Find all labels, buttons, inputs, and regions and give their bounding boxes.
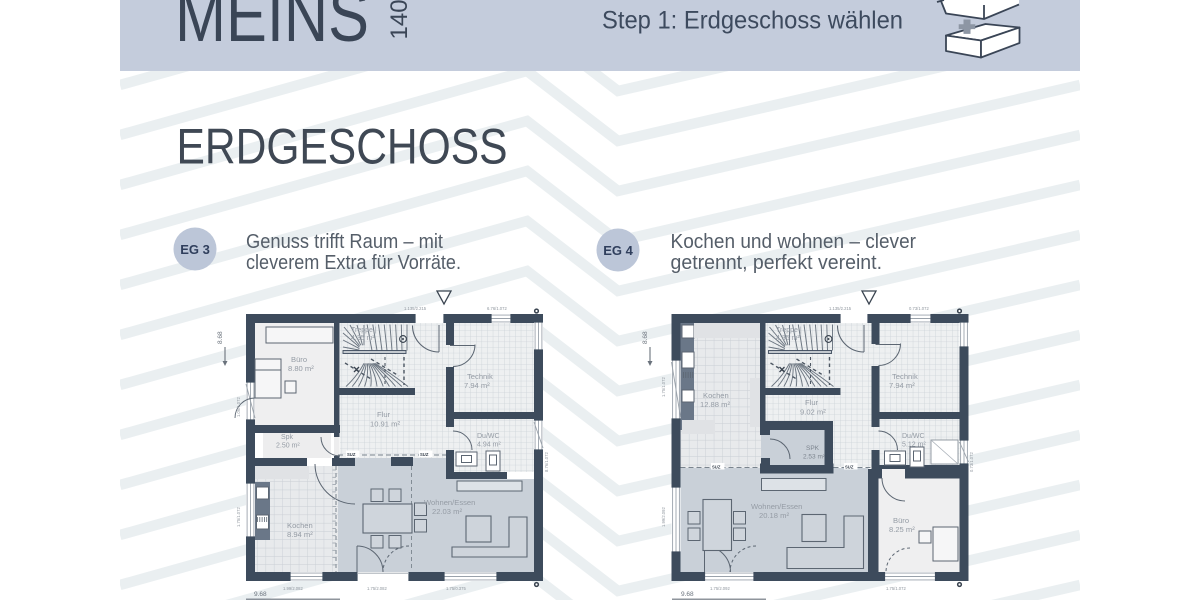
svg-text:SUZ: SUZ — [845, 465, 854, 470]
svg-text:0.73/1.072: 0.73/1.072 — [969, 452, 974, 472]
svg-text:Technik: Technik — [467, 372, 493, 381]
svg-text:2.53 m²: 2.53 m² — [803, 454, 826, 461]
svg-text:10.91 m²: 10.91 m² — [370, 420, 400, 429]
svg-text:Büro: Büro — [291, 355, 307, 364]
svg-text:1.135/2.215: 1.135/2.215 — [829, 306, 852, 311]
svg-text:2.50 m²: 2.50 m² — [276, 443, 300, 450]
svg-text:Genuss trifft Raum – mit: Genuss trifft Raum – mit — [246, 231, 443, 253]
svg-text:cleverem Extra für Vorräte.: cleverem Extra für Vorräte. — [246, 252, 461, 274]
svg-text:9.68: 9.68 — [254, 591, 267, 598]
svg-text:7.94 m²: 7.94 m² — [464, 381, 490, 390]
svg-text:7.94 m²: 7.94 m² — [889, 381, 915, 390]
svg-text:140: 140 — [386, 0, 413, 40]
svg-text:ERDGESCHOSS: ERDGESCHOSS — [177, 119, 508, 175]
svg-text:1.99/2.082: 1.99/2.082 — [283, 586, 303, 591]
svg-text:Du/WC: Du/WC — [477, 433, 500, 440]
svg-text:1.75/2.082: 1.75/2.082 — [367, 586, 387, 591]
svg-text:Kochen und wohnen – clever: Kochen und wohnen – clever — [671, 231, 917, 253]
svg-text:EG 3: EG 3 — [180, 242, 210, 257]
svg-text:SUZ: SUZ — [712, 465, 721, 470]
svg-text:Technik: Technik — [892, 372, 918, 381]
svg-text:9.02 m²: 9.02 m² — [800, 408, 826, 417]
svg-text:getrennt, perfekt vereint.: getrennt, perfekt vereint. — [671, 252, 883, 274]
svg-text:1.75/1.072: 1.75/1.072 — [236, 507, 241, 527]
svg-text:Wohnen/Essen: Wohnen/Essen — [751, 502, 802, 511]
svg-text:9.68: 9.68 — [681, 591, 694, 598]
svg-text:1.75/2.092: 1.75/2.092 — [710, 586, 730, 591]
svg-text:1.75/1.072: 1.75/1.072 — [886, 586, 906, 591]
svg-text:1.99/2.092: 1.99/2.092 — [661, 507, 666, 527]
svg-text:Spk: Spk — [281, 434, 294, 441]
svg-text:8.25 m²: 8.25 m² — [889, 525, 915, 534]
svg-text:Du/WC: Du/WC — [902, 433, 925, 440]
svg-text:Wohnen/Essen: Wohnen/Essen — [424, 498, 475, 507]
svg-text:8.68: 8.68 — [217, 331, 224, 344]
svg-text:Kochen: Kochen — [287, 521, 313, 530]
svg-text:5.12 m²: 5.12 m² — [902, 442, 926, 449]
svg-text:22.03 m²: 22.03 m² — [432, 507, 462, 516]
svg-text:Flur: Flur — [805, 398, 819, 407]
svg-text:1.135/2.215: 1.135/2.215 — [404, 306, 427, 311]
svg-text:EG 4: EG 4 — [603, 243, 633, 258]
svg-text:0.73/1.072: 0.73/1.072 — [909, 306, 929, 311]
svg-text:8.80 m²: 8.80 m² — [288, 364, 314, 373]
svg-text:4.94 m²: 4.94 m² — [477, 442, 501, 449]
svg-text:SPK: SPK — [806, 445, 820, 452]
svg-text:Treppe |: Treppe | — [776, 327, 802, 334]
svg-text:8.68: 8.68 — [642, 331, 649, 344]
svg-text:SUZ: SUZ — [420, 452, 429, 457]
svg-text:4.35 m²: 4.35 m² — [776, 335, 800, 342]
svg-text:1.75/1.072: 1.75/1.072 — [661, 377, 666, 397]
svg-text:Step 1: Erdgeschoss wählen: Step 1: Erdgeschoss wählen — [602, 6, 903, 34]
svg-text:6.76/1.072: 6.76/1.072 — [487, 306, 507, 311]
svg-text:8.76/1.072: 8.76/1.072 — [544, 452, 549, 472]
svg-text:1.75/0.375: 1.75/0.375 — [446, 586, 466, 591]
svg-text:8.94 m²: 8.94 m² — [287, 530, 313, 539]
svg-text:SUZ: SUZ — [347, 452, 356, 457]
svg-text:Kochen: Kochen — [703, 391, 729, 400]
svg-text:Treppe |: Treppe | — [351, 327, 377, 334]
svg-text:12.88 m²: 12.88 m² — [700, 400, 730, 409]
svg-text:Flur: Flur — [377, 410, 391, 419]
svg-text:1.06/1.072: 1.06/1.072 — [236, 397, 241, 417]
svg-text:4.35 m²: 4.35 m² — [351, 335, 375, 342]
svg-text:MEINS: MEINS — [175, 0, 369, 57]
svg-text:20.18 m²: 20.18 m² — [759, 511, 789, 520]
svg-text:Büro: Büro — [893, 516, 909, 525]
